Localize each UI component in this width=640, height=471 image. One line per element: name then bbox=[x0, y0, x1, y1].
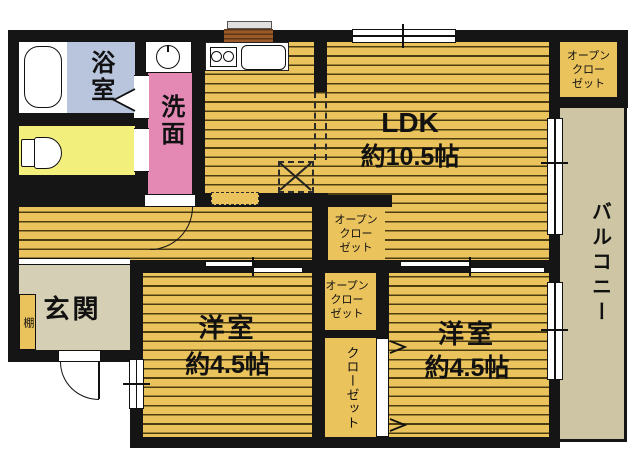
open-closet-ldk-label: オープン クロー ゼット bbox=[326, 210, 386, 258]
entrance-label: 玄関 bbox=[30, 293, 115, 327]
wall-entrance-bottom-left bbox=[8, 350, 58, 362]
sliding-door-bedroom-left-tick bbox=[252, 257, 254, 276]
window-ldk-top-mullion bbox=[402, 24, 404, 48]
window-ldk-balcony-mullion bbox=[541, 162, 568, 164]
wall-balcony-top bbox=[549, 97, 628, 108]
wall-kitchen-stub bbox=[314, 42, 327, 92]
wall-washroom-right bbox=[192, 42, 205, 193]
sliding-door-bedroom-right-a bbox=[400, 261, 471, 267]
kitchen-dashed-counter bbox=[211, 192, 259, 205]
window-ldk-balcony bbox=[547, 118, 563, 235]
entrance-door-leaf bbox=[58, 350, 101, 362]
entrance-door-arc bbox=[60, 362, 99, 400]
kitchen-window-louver bbox=[224, 29, 273, 42]
kitchen-window-outer bbox=[227, 21, 272, 29]
balcony-rail-right bbox=[624, 108, 627, 442]
bathtub-icon bbox=[24, 46, 62, 108]
toilet-door-opening bbox=[134, 128, 149, 172]
stove-burner-right-icon bbox=[223, 51, 234, 62]
bedroom-left-size-label: 約4.5帖 bbox=[135, 350, 320, 380]
refrigerator-space bbox=[278, 161, 314, 193]
ldk-size-label: 約10.5帖 bbox=[325, 142, 495, 172]
sliding-door-bedroom-right-b bbox=[470, 267, 545, 273]
floor-plan: 棚 浴室 洗面 LDK 約10.5帖 オープン クロー ゼット バルコニー オー… bbox=[0, 0, 640, 471]
open-closet-middle-label: オープン クロー ゼット bbox=[317, 276, 377, 324]
window-bedroom-left-mullion bbox=[123, 383, 150, 385]
wall-bottom bbox=[130, 437, 560, 448]
balcony-rail-bottom bbox=[560, 439, 627, 442]
bath-label: 浴室 bbox=[86, 45, 114, 109]
window-ldk-top bbox=[352, 29, 456, 43]
ldk-lower-floor bbox=[385, 207, 549, 260]
closet-label: クローゼット bbox=[337, 339, 365, 436]
wall-top bbox=[8, 30, 628, 42]
entrance-step-sill bbox=[19, 258, 130, 265]
wall-toilet-block bbox=[8, 175, 148, 207]
wall-bath-bottom bbox=[19, 113, 135, 126]
sliding-door-bedroom-left-b bbox=[253, 267, 303, 273]
washroom-door-sill bbox=[145, 194, 195, 207]
bedroom-left-label: 洋室 bbox=[135, 314, 320, 344]
sliding-door-bedroom-left-a bbox=[205, 261, 255, 267]
open-closet-top-right-label: オープン クロー ゼット bbox=[559, 46, 618, 94]
washing-machine-dial-icon bbox=[167, 45, 169, 52]
balcony-label: バルコニー bbox=[584, 188, 614, 338]
bedroom-right-size-label: 約4.5帖 bbox=[382, 353, 552, 383]
ldk-label: LDK bbox=[335, 107, 485, 139]
bath-door-opening bbox=[134, 75, 149, 119]
bedroom-right-label: 洋室 bbox=[382, 320, 552, 350]
sliding-door-bedroom-right-tick bbox=[469, 257, 471, 276]
washroom-label: 洗面 bbox=[156, 88, 184, 154]
sink-icon bbox=[241, 45, 286, 70]
stove-burner-left-icon bbox=[211, 51, 222, 62]
kitchen-boundary-dash-left bbox=[314, 92, 316, 160]
